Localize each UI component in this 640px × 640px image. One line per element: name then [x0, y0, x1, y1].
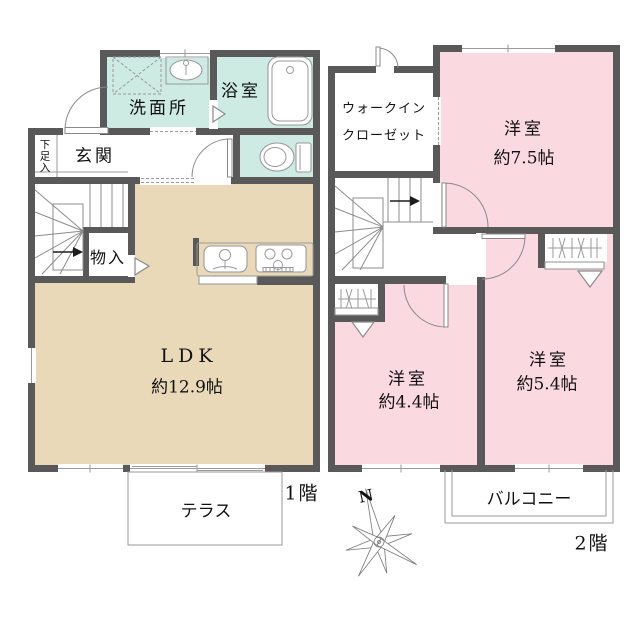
staircase-2f	[335, 178, 433, 270]
stair-direction-arrow-2f	[410, 196, 420, 206]
toilet	[260, 143, 311, 172]
terrace-label: テラス	[181, 497, 232, 522]
floor1-plan	[27, 49, 320, 545]
bedroom75-name-label: 洋室	[504, 115, 544, 140]
hall-ldk-opening	[140, 176, 196, 185]
balcony-label: バルコニー	[487, 485, 572, 510]
kitchen-sink	[204, 246, 247, 272]
compass-rose	[333, 480, 420, 581]
front-door-leaf	[65, 128, 108, 134]
bedroom54-closet-track	[545, 262, 604, 269]
floorplan-image: 洗面所 浴室 玄関 下足入 物入 LDK 約12.9帖 テラス 1階 ウォークイ…	[0, 0, 640, 640]
washroom-label: 洗面所	[129, 94, 189, 119]
ldk-door	[192, 139, 232, 185]
floor2-label: 2階	[574, 529, 609, 556]
wic-bedroom75-opening	[432, 97, 441, 145]
bedroom54-name-label: 洋室	[529, 346, 569, 371]
bedroom75-floor	[440, 52, 613, 227]
entrance-label: 玄関	[75, 142, 115, 167]
wic-label-line2: クローゼット	[342, 125, 426, 144]
bedroom44-size-label: 約4.4帖	[378, 388, 439, 413]
stove	[256, 245, 306, 272]
floorplan-drawing	[0, 0, 640, 640]
counter-front	[199, 276, 257, 284]
bathtub	[268, 57, 312, 125]
ldk-size-label: 約12.9帖	[151, 373, 223, 398]
bedroom54-size-label: 約5.4帖	[516, 370, 577, 395]
ldk-name-label: LDK	[160, 345, 217, 367]
bedroom44-closet-track	[335, 308, 378, 315]
floor1-label: 1階	[284, 479, 319, 506]
wic-label-line1: ウォークイン	[342, 98, 426, 117]
storage-label: 物入	[90, 244, 126, 268]
storage-opening	[128, 255, 135, 277]
bedroom44-name-label: 洋室	[388, 365, 428, 390]
bedroom75-size-label: 約7.5帖	[493, 144, 554, 169]
bathroom-label: 浴室	[221, 77, 261, 102]
stair-direction-arrow-1f	[73, 247, 83, 257]
shoe-storage-label: 下足入	[38, 139, 53, 174]
